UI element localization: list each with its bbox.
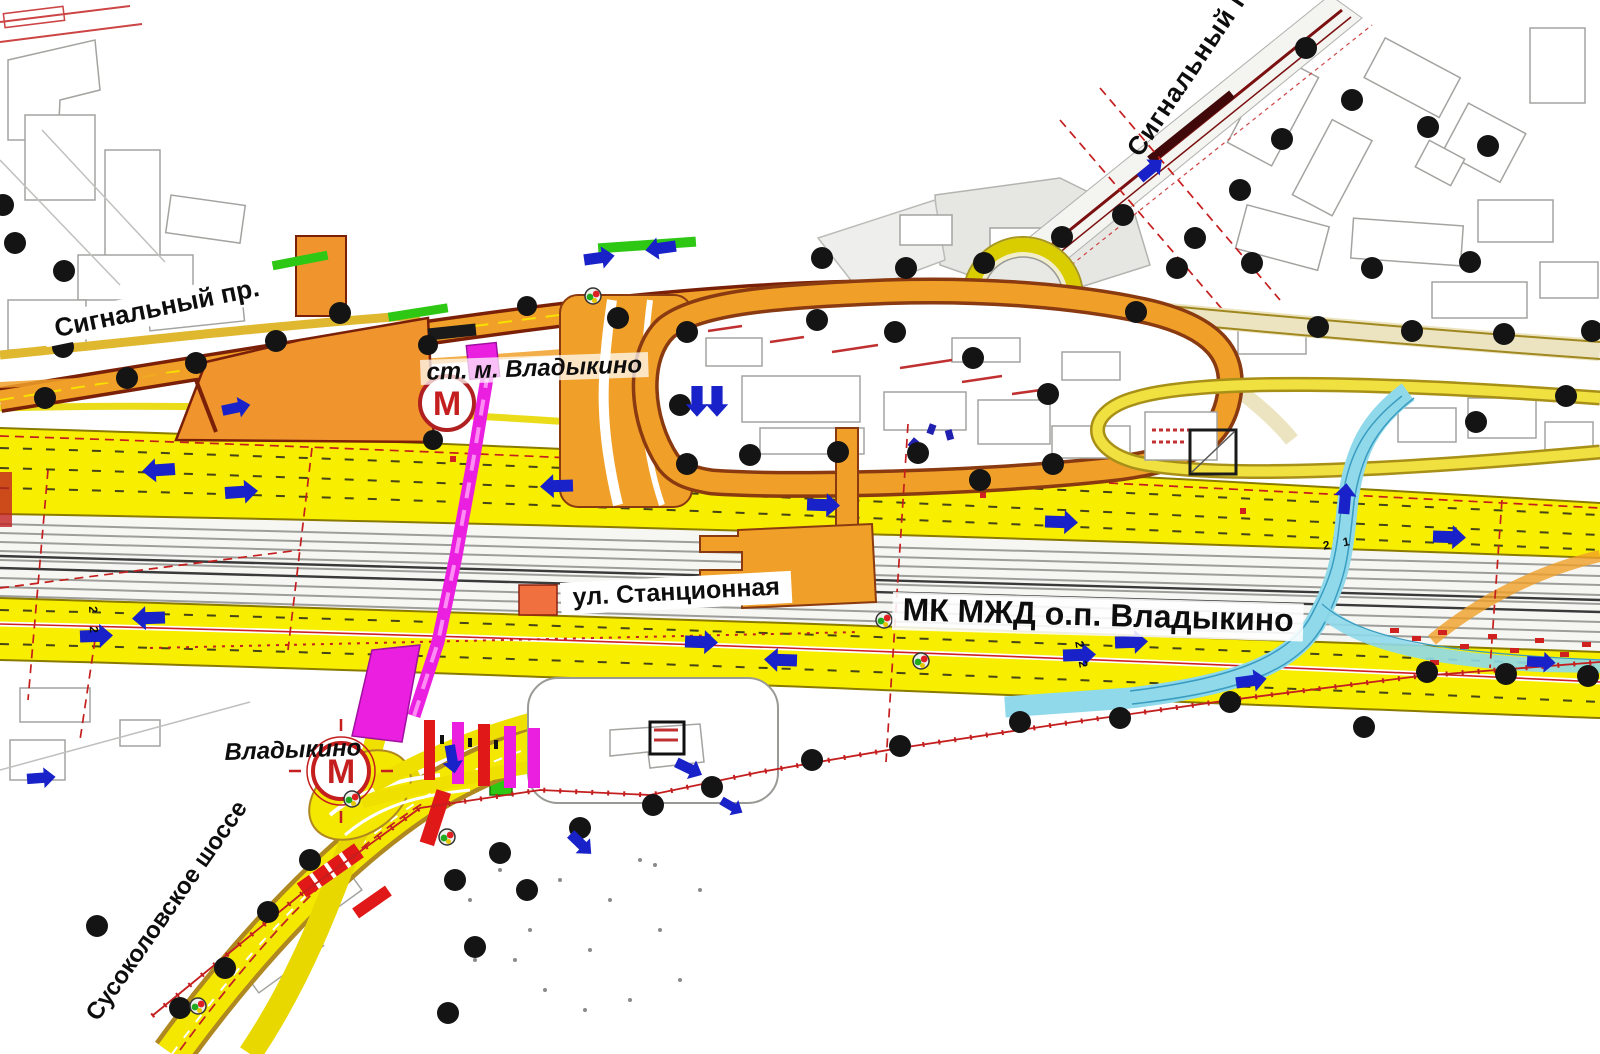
- vegetation-dots: [468, 858, 702, 1012]
- site-plan-map: М М: [0, 0, 1600, 1054]
- metro-symbol: М: [433, 385, 461, 423]
- track-number-22-west: 2 2: [86, 606, 100, 638]
- metro-station-label-south: Владыкино: [224, 735, 362, 765]
- map-canvas: М М: [0, 0, 1600, 1054]
- traffic-island: [528, 678, 778, 803]
